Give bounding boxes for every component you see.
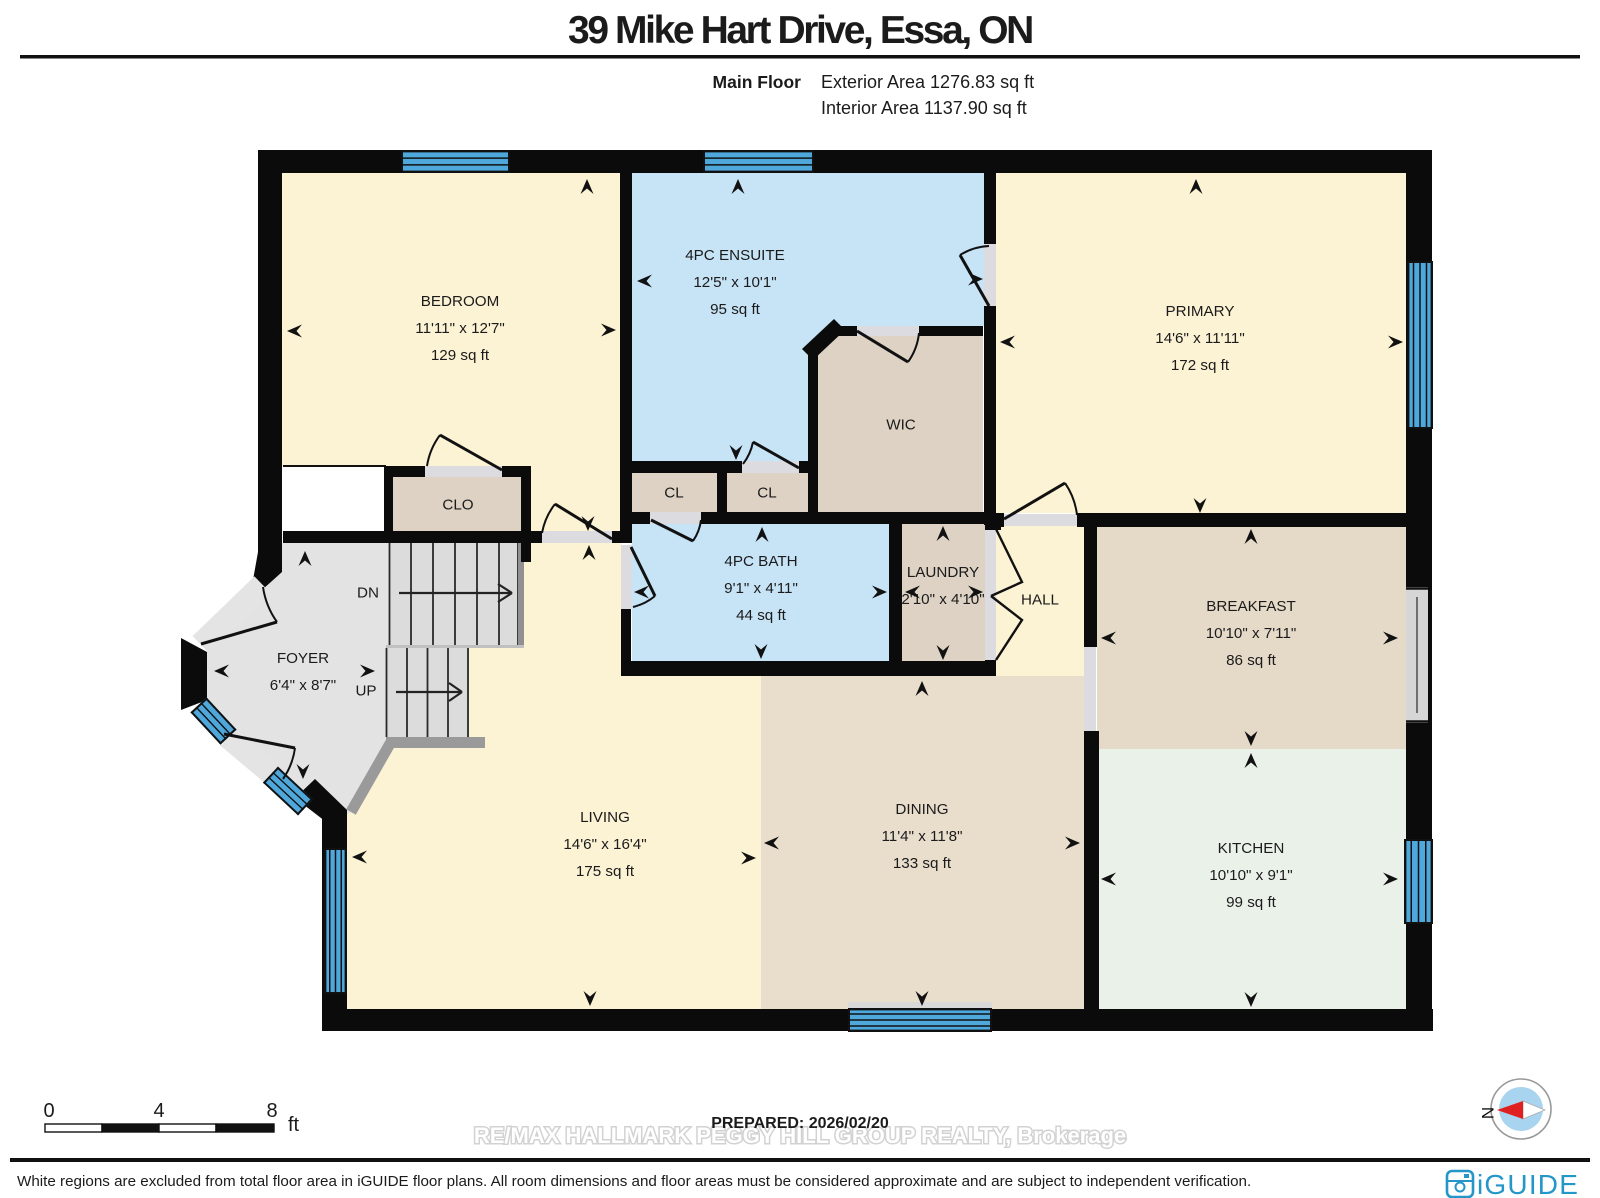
svg-text:4PC BATH: 4PC BATH xyxy=(724,553,797,570)
svg-text:4PC ENSUITE: 4PC ENSUITE xyxy=(685,247,785,264)
svg-text:12'5" x 10'1": 12'5" x 10'1" xyxy=(693,274,776,291)
svg-text:White regions are excluded fro: White regions are excluded from total fl… xyxy=(17,1173,1251,1190)
svg-text:DN: DN xyxy=(357,585,379,602)
svg-text:95 sq ft: 95 sq ft xyxy=(710,301,761,318)
svg-text:WIC: WIC xyxy=(886,417,916,434)
svg-text:FOYER: FOYER xyxy=(277,650,329,667)
svg-text:86 sq ft: 86 sq ft xyxy=(1226,652,1277,669)
svg-text:KITCHEN: KITCHEN xyxy=(1218,840,1285,857)
svg-text:11'11" x 12'7": 11'11" x 12'7" xyxy=(415,320,504,337)
svg-text:LAUNDRY: LAUNDRY xyxy=(907,564,979,581)
svg-text:BREAKFAST: BREAKFAST xyxy=(1206,598,1295,615)
svg-text:39 Mike Hart Drive, Essa, ON: 39 Mike Hart Drive, Essa, ON xyxy=(568,9,1032,52)
svg-text:Exterior Area 1276.83 sq ft: Exterior Area 1276.83 sq ft xyxy=(821,72,1034,92)
svg-text:PREPARED: 2026/02/20: PREPARED: 2026/02/20 xyxy=(711,1115,889,1132)
svg-text:PRIMARY: PRIMARY xyxy=(1166,303,1235,320)
svg-text:10'10" x 7'11": 10'10" x 7'11" xyxy=(1206,625,1297,642)
svg-text:iGUIDE: iGUIDE xyxy=(1477,1169,1579,1198)
svg-text:4: 4 xyxy=(153,1100,164,1122)
svg-text:LIVING: LIVING xyxy=(580,809,630,826)
svg-text:129 sq ft: 129 sq ft xyxy=(431,347,490,364)
svg-text:DINING: DINING xyxy=(895,801,948,818)
svg-text:99 sq ft: 99 sq ft xyxy=(1226,894,1277,911)
svg-text:8: 8 xyxy=(266,1100,277,1122)
svg-text:172 sq ft: 172 sq ft xyxy=(1171,357,1230,374)
svg-text:UP: UP xyxy=(355,683,376,700)
svg-text:HALL: HALL xyxy=(1021,592,1059,609)
svg-text:CLO: CLO xyxy=(442,497,473,514)
svg-text:133 sq ft: 133 sq ft xyxy=(893,855,952,872)
svg-text:14'6" x 16'4": 14'6" x 16'4" xyxy=(563,836,646,853)
svg-text:Interior Area 1137.90 sq ft: Interior Area 1137.90 sq ft xyxy=(821,98,1027,118)
svg-text:0: 0 xyxy=(43,1100,54,1122)
svg-text:CL: CL xyxy=(664,485,683,502)
svg-text:11'4" x 11'8": 11'4" x 11'8" xyxy=(881,828,962,845)
svg-text:ft: ft xyxy=(288,1114,300,1136)
svg-text:N: N xyxy=(1478,1107,1497,1119)
svg-text:14'6" x 11'11": 14'6" x 11'11" xyxy=(1155,330,1244,347)
svg-text:175 sq ft: 175 sq ft xyxy=(576,863,635,880)
svg-text:10'10" x 9'1": 10'10" x 9'1" xyxy=(1209,867,1292,884)
svg-text:CL: CL xyxy=(757,485,776,502)
svg-text:6'4" x 8'7": 6'4" x 8'7" xyxy=(270,677,336,694)
svg-text:44 sq ft: 44 sq ft xyxy=(736,607,787,624)
svg-text:BEDROOM: BEDROOM xyxy=(421,293,499,310)
svg-text:9'1" x 4'11": 9'1" x 4'11" xyxy=(724,580,798,597)
svg-text:Main Floor: Main Floor xyxy=(713,72,802,92)
